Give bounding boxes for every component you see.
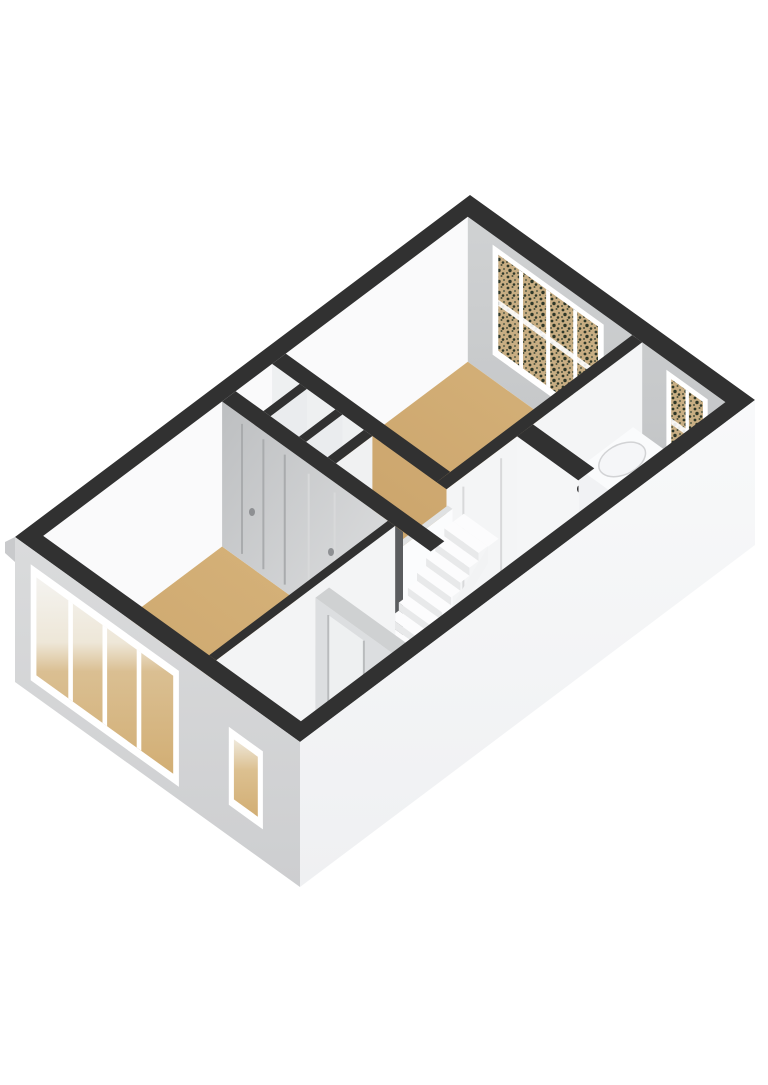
- exterior-wall-west-sliver: [5, 537, 15, 562]
- floor-plan-3d-render: [0, 0, 768, 1085]
- closet-door-handle: [249, 508, 255, 516]
- bedroom-2-door-handle: [328, 548, 334, 556]
- floor-plan-3d-figure: [0, 0, 768, 1085]
